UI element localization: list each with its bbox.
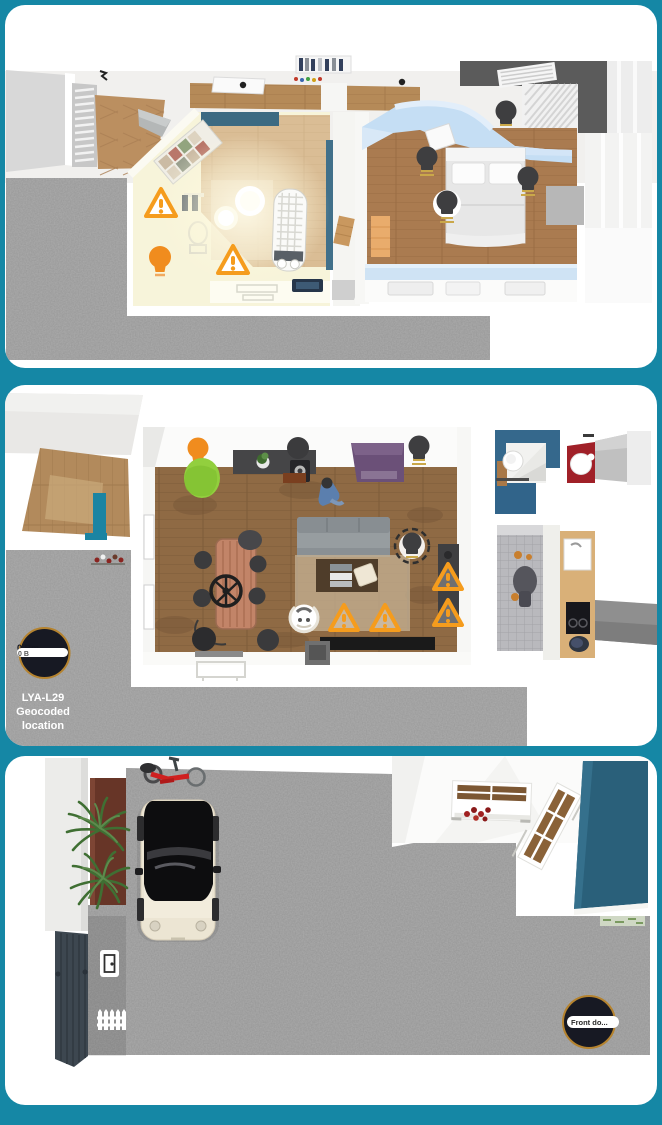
svg-text:Geocoded: Geocoded bbox=[16, 706, 70, 718]
svg-text:LYA-L29: LYA-L29 bbox=[22, 692, 65, 704]
svg-text:location: location bbox=[22, 720, 64, 732]
svg-text:0 B: 0 B bbox=[18, 651, 29, 658]
svg-text:Front do...: Front do... bbox=[571, 1018, 608, 1027]
